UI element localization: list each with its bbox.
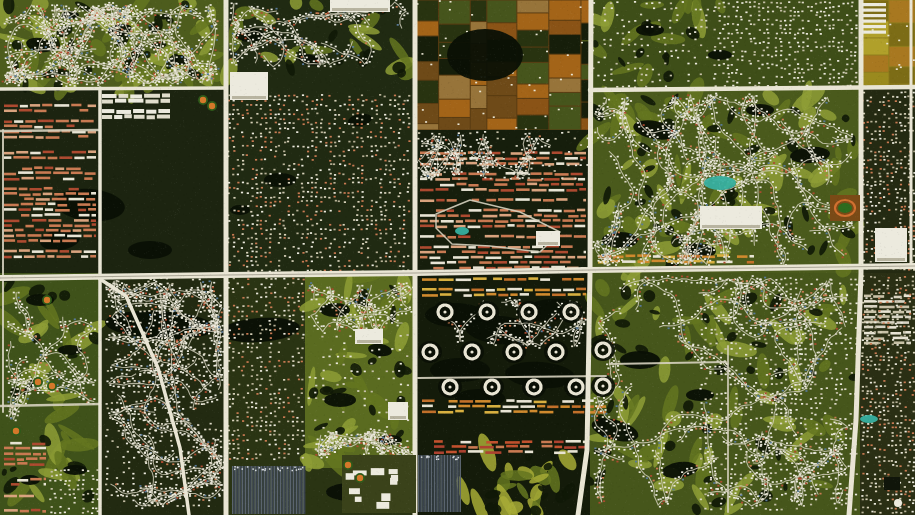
satellite-photo-canvas: [0, 0, 915, 515]
satellite-photo: [0, 0, 915, 515]
